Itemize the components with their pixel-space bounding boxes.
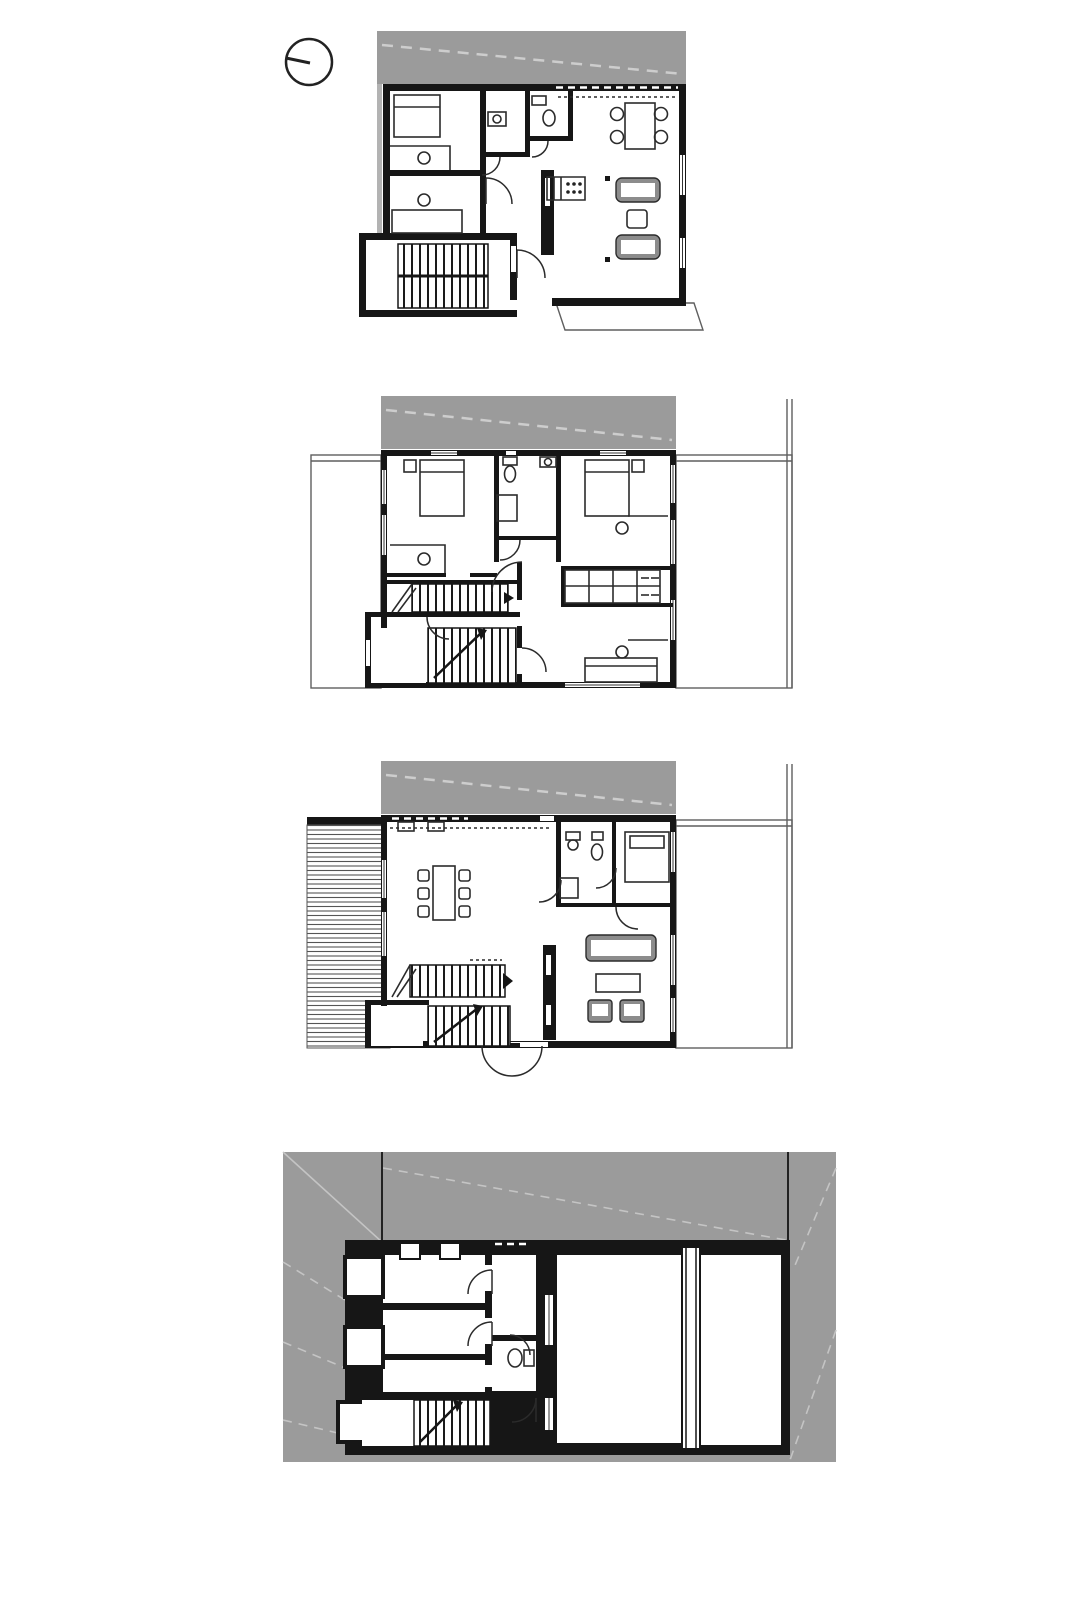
floor-plan-basement [283, 1152, 836, 1462]
speaker-dot [605, 257, 610, 262]
drawing-sheet [0, 0, 1065, 1600]
large-storage-room-b [701, 1255, 781, 1445]
cellar-room-3 [383, 1360, 485, 1392]
wall-niche [440, 1243, 460, 1259]
entry-step [556, 303, 703, 330]
wall-niche [400, 1243, 420, 1259]
sofa [586, 935, 656, 961]
speaker-dot [605, 176, 610, 181]
armchair-1 [588, 1000, 612, 1022]
cellar-room-1 [383, 1255, 485, 1303]
main-staircase [392, 960, 513, 997]
entry-door-swing [482, 1046, 542, 1076]
floor-plan-attic [359, 31, 703, 330]
neighbor-roof-band [381, 396, 676, 449]
vestibule-staircase [371, 628, 516, 683]
large-storage-room-a [557, 1255, 681, 1443]
staircase [362, 1400, 490, 1446]
neighbor-roof-band [381, 761, 676, 814]
sofa-2 [616, 235, 660, 259]
corridor [492, 1255, 536, 1335]
neighbor-roof-band [377, 31, 686, 84]
neighbor-outline-right [676, 399, 792, 688]
sofa-1 [616, 178, 660, 202]
north-arrow-icon [286, 39, 332, 85]
floor-plan-ground [307, 761, 792, 1076]
floor-plan-upper [311, 396, 792, 688]
main-staircase [398, 244, 488, 308]
neighbor-wall-strip [377, 84, 382, 240]
neighbor-outline-right [676, 764, 792, 1048]
cellar-room-2 [383, 1310, 485, 1354]
armchair-2 [620, 1000, 644, 1022]
vestibule-staircase [371, 1004, 510, 1046]
